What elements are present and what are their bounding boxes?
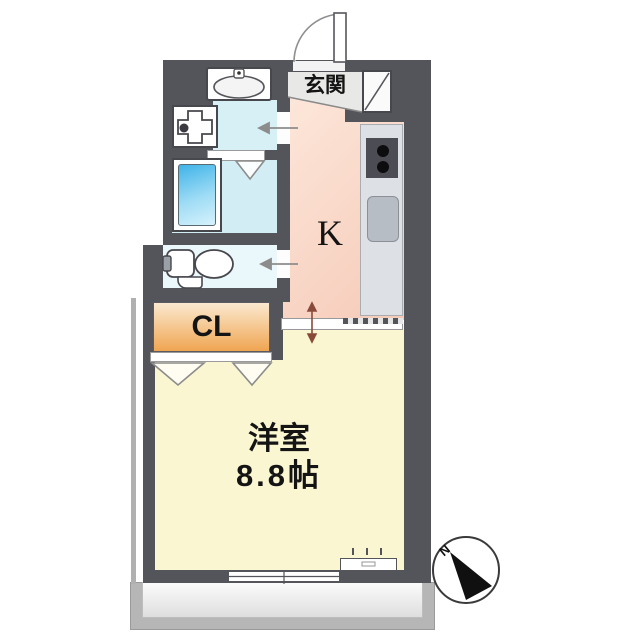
- wall-toilet-left: [143, 245, 163, 302]
- room-size-label: 8.8帖: [179, 459, 379, 493]
- kitchen-label: K: [300, 214, 360, 254]
- room-label: 洋室: [179, 422, 379, 456]
- window: [228, 571, 340, 582]
- floor-plan: 玄関 CL K 洋室 8.8帖: [0, 0, 640, 640]
- entrance-door-icon: [294, 13, 346, 62]
- sliding-door-track-hatch: [343, 318, 403, 324]
- ac-unit-box: [340, 558, 397, 571]
- kitchen-sink: [367, 196, 399, 242]
- north-compass-icon: N: [433, 537, 499, 603]
- vanity-counter: [206, 67, 272, 101]
- washroom-floor: [213, 100, 277, 150]
- stove: [366, 138, 398, 178]
- ac-tick-1: [352, 548, 354, 555]
- entrance-threshold: [293, 61, 345, 71]
- wall-closet-top: [143, 288, 290, 302]
- bathtub: [178, 164, 216, 226]
- shoe-cabinet: [362, 70, 392, 113]
- toilet-floor: [163, 245, 277, 288]
- closet-label: CL: [153, 310, 270, 343]
- entrance-label: 玄関: [290, 74, 360, 97]
- balcony-floor: [142, 582, 423, 618]
- closet-front-strip: [150, 352, 272, 362]
- ac-tick-3: [380, 548, 382, 555]
- washroom-door-opening: [277, 112, 290, 144]
- compass-north-label: N: [436, 542, 453, 560]
- washer-pan: [172, 105, 218, 148]
- toilet-door-opening: [277, 250, 290, 278]
- ac-tick-2: [366, 548, 368, 555]
- exterior-line: [131, 298, 136, 584]
- wall-right: [404, 60, 431, 583]
